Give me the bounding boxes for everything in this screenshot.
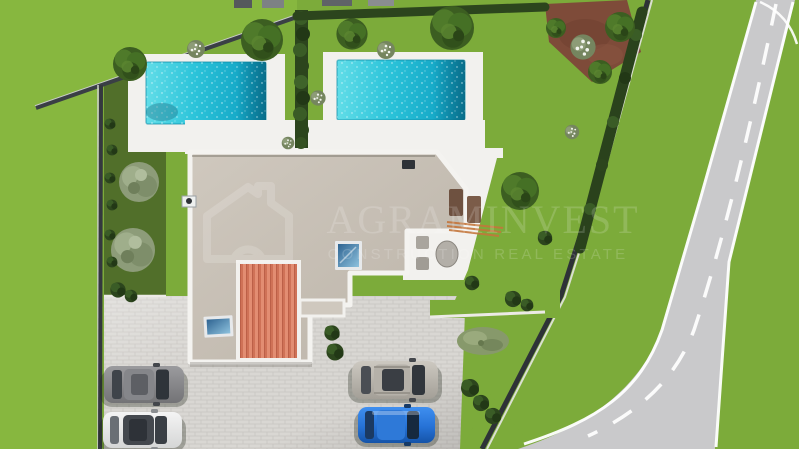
bush: [485, 408, 501, 424]
scene-svg: AGRAMINVEST CONSTRUCTION REAL ESTATE: [0, 0, 799, 449]
bush: [505, 291, 521, 307]
bush: [105, 230, 116, 241]
car-white: [99, 409, 186, 449]
bush: [324, 325, 339, 340]
aerial-render: AGRAMINVEST CONSTRUCTION REAL ESTATE: [0, 0, 799, 449]
olive-tree: [111, 228, 155, 272]
bush: [107, 257, 118, 268]
flower-bush: [570, 34, 595, 59]
bush: [107, 145, 118, 156]
tree: [430, 6, 474, 50]
roof-vent: [402, 160, 415, 169]
flower-bush: [187, 40, 205, 58]
shrub: [457, 327, 509, 355]
skylight: [203, 315, 233, 337]
tree: [336, 18, 367, 49]
flower-bush: [377, 41, 395, 59]
lower-roof-step: [300, 300, 344, 316]
bush: [461, 379, 479, 397]
bush: [110, 282, 125, 297]
olive-tree: [119, 162, 159, 202]
bush: [105, 119, 116, 130]
watermark-tagline: CONSTRUCTION REAL ESTATE: [328, 246, 629, 263]
pool-sparkle: [337, 60, 465, 120]
tree: [241, 19, 283, 61]
bush: [521, 299, 534, 312]
bush: [473, 395, 489, 411]
flower-bush: [310, 90, 325, 105]
roof-hatch: [182, 196, 196, 207]
bush: [326, 343, 343, 360]
tree: [113, 47, 147, 81]
flower-bush: [565, 125, 579, 139]
tree: [546, 18, 566, 38]
car-silver-suv: [348, 358, 442, 403]
building-shadow: [190, 362, 312, 367]
tree: [605, 12, 635, 42]
bush: [105, 173, 116, 184]
watermark-brand: AGRAMINVEST: [326, 197, 639, 242]
bush: [125, 290, 138, 303]
red-tile-roof: [238, 262, 299, 360]
tree: [588, 60, 612, 84]
car-grey-suv: [100, 363, 188, 407]
car-blue: [354, 404, 439, 447]
bush: [465, 276, 479, 290]
flower-bush: [282, 137, 295, 150]
bush: [107, 200, 118, 211]
pool-shadow: [146, 103, 178, 121]
